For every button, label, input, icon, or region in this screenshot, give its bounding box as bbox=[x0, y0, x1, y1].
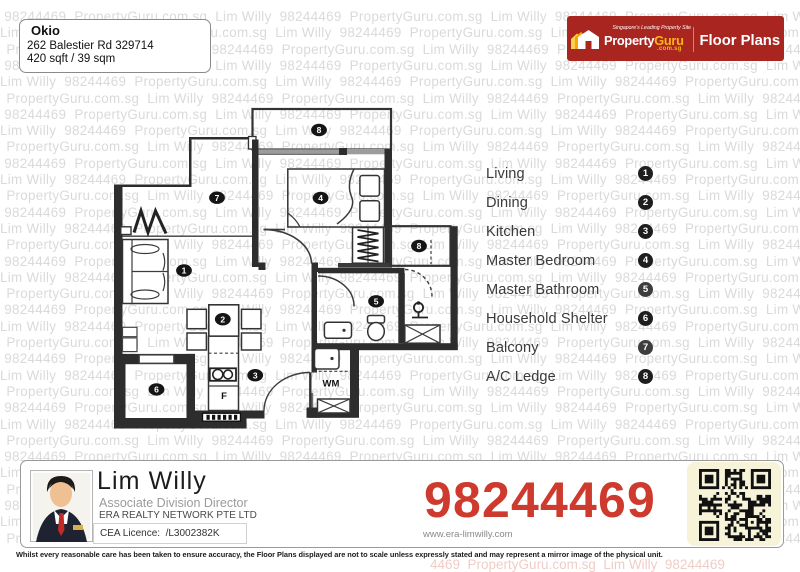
svg-text:7: 7 bbox=[215, 193, 220, 203]
svg-text:2: 2 bbox=[220, 314, 225, 324]
svg-text:3: 3 bbox=[253, 370, 258, 380]
svg-text:F: F bbox=[221, 391, 227, 402]
svg-text:5: 5 bbox=[374, 296, 379, 306]
svg-text:1: 1 bbox=[182, 266, 187, 276]
svg-text:8: 8 bbox=[417, 241, 422, 251]
svg-text:4: 4 bbox=[318, 193, 323, 203]
svg-text:8: 8 bbox=[317, 125, 322, 135]
svg-text:WM: WM bbox=[323, 379, 340, 390]
svg-text:6: 6 bbox=[154, 385, 159, 395]
